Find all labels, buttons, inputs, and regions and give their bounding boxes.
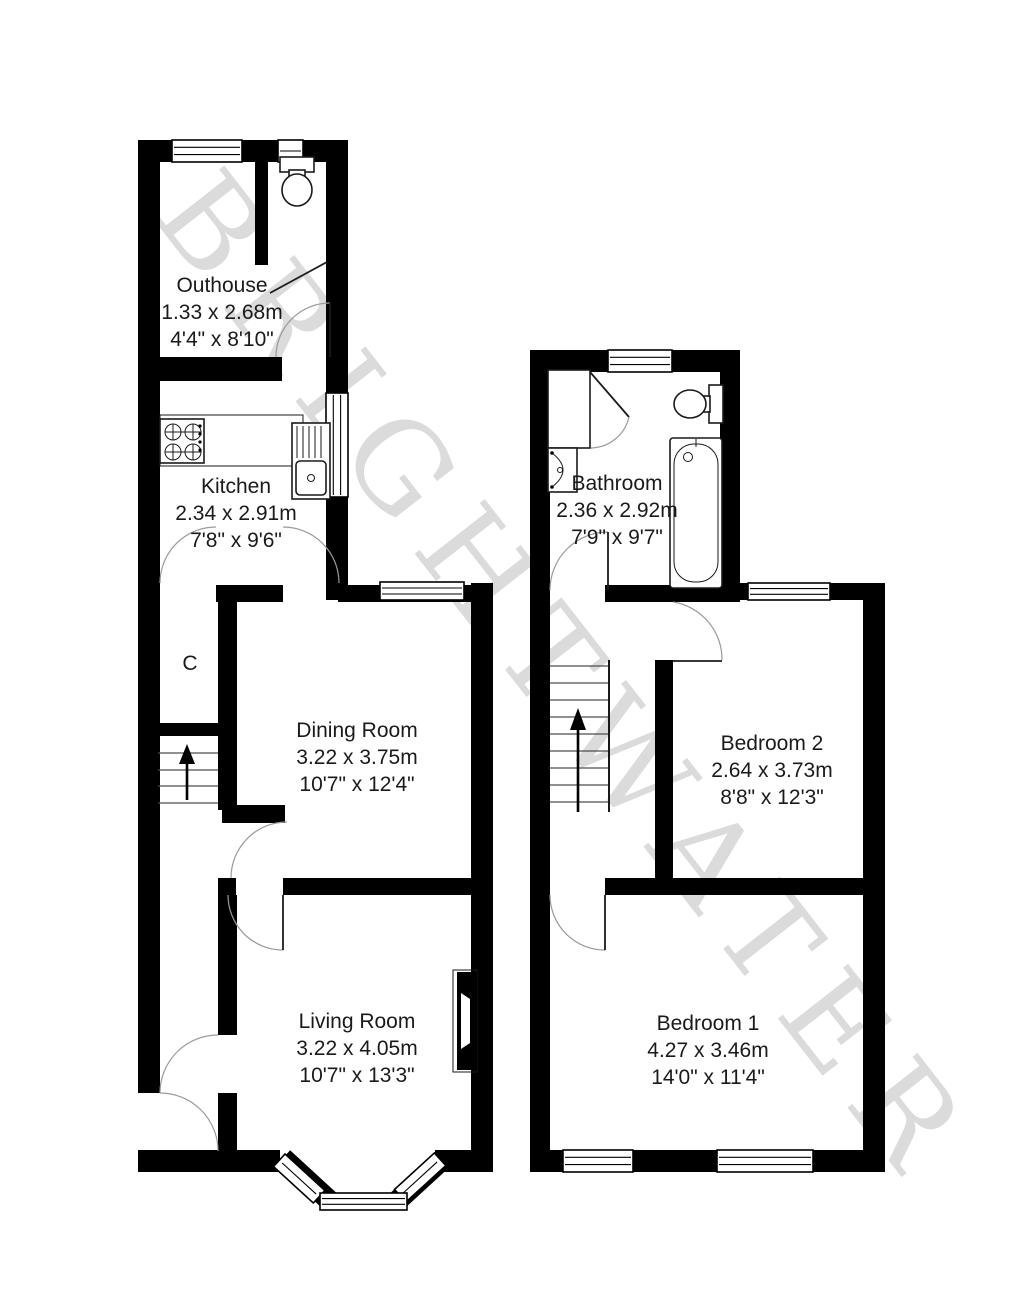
room-name: Outhouse [176, 274, 267, 297]
bedroom1-label: Bedroom 1 4.27 x 3.46m 14'0" x 11'4" [647, 1012, 768, 1089]
room-metric: 3.22 x 3.75m [296, 746, 417, 769]
cupboard-label: C [182, 652, 197, 675]
room-imperial: 10'7" x 13'3" [299, 1064, 414, 1087]
outhouse-window [172, 140, 242, 162]
room-name: Dining Room [296, 719, 417, 742]
bath-icon [670, 438, 722, 588]
bedroom2-label: Bedroom 2 2.64 x 3.73m 8'8" x 12'3" [711, 732, 832, 809]
room-imperial: 7'8" x 9'6" [190, 529, 282, 552]
room-imperial: 7'9" x 9'7" [571, 526, 663, 549]
bedroom1-window-left [563, 1150, 633, 1172]
room-metric: 2.36 x 2.92m [556, 499, 677, 522]
toilet-icon [280, 157, 314, 206]
room-name: Kitchen [201, 475, 271, 498]
living-room-label: Living Room 3.22 x 4.05m 10'7" x 13'3" [296, 1010, 417, 1087]
room-metric: 2.64 x 3.73m [711, 759, 832, 782]
room-metric: 2.34 x 2.91m [175, 502, 296, 525]
bathroom-window [608, 350, 672, 372]
bathroom-label: Bathroom 2.36 x 2.92m 7'9" x 9'7" [556, 472, 677, 549]
room-imperial: 14'0" x 11'4" [651, 1066, 765, 1089]
room-imperial: 4'4" x 8'10" [170, 328, 274, 351]
room-name: Bedroom 2 [721, 732, 824, 755]
room-metric: 3.22 x 4.05m [296, 1037, 417, 1060]
room-metric: 4.27 x 3.46m [647, 1039, 768, 1062]
bedroom2-window [748, 583, 830, 600]
floorplan-page: BRIGHTWATER [0, 0, 1024, 1308]
sink-icon [292, 423, 330, 499]
bedroom1-window-right [717, 1150, 813, 1172]
hob-icon [160, 419, 204, 463]
room-name: Bedroom 1 [657, 1012, 760, 1035]
room-metric: 1.33 x 2.68m [161, 301, 282, 324]
room-imperial: 10'7" x 12'4" [299, 773, 414, 796]
room-imperial: 8'8" x 12'3" [720, 786, 824, 809]
floorplan-canvas: BRIGHTWATER [0, 0, 1024, 1308]
dining-room-label: Dining Room 3.22 x 3.75m 10'7" x 12'4" [296, 719, 417, 796]
room-name: Bathroom [571, 472, 662, 495]
bay-window-centre [320, 1193, 407, 1210]
room-name: Living Room [299, 1010, 416, 1033]
dining-window [380, 582, 464, 600]
outhouse-label: Outhouse 1.33 x 2.68m 4'4" x 8'10" [161, 274, 282, 351]
